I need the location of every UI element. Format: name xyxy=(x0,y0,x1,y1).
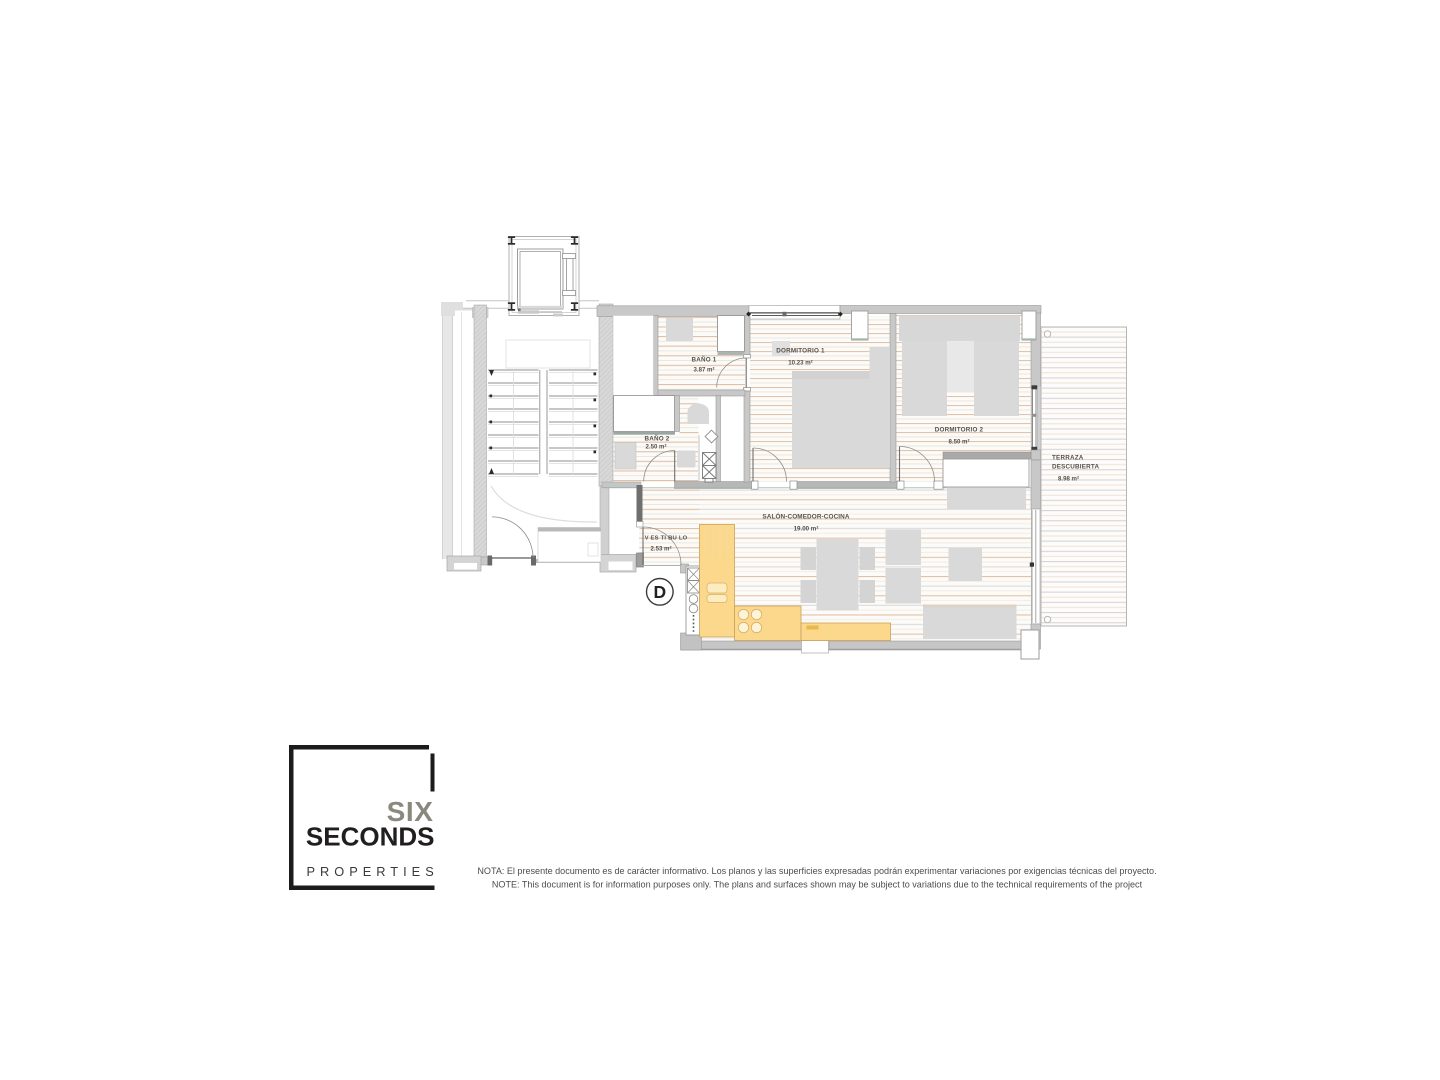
svg-text:19.00 m²: 19.00 m² xyxy=(794,526,819,533)
svg-text:3.87 m²: 3.87 m² xyxy=(693,367,714,374)
svg-text:8.50 m²: 8.50 m² xyxy=(948,439,969,446)
svg-text:NOTE: This document is for inf: NOTE: This document is for information p… xyxy=(492,880,1143,890)
svg-text:TERRAZA: TERRAZA xyxy=(1052,455,1084,462)
svg-text:SECONDS: SECONDS xyxy=(306,822,435,852)
svg-text:PROPERTIES: PROPERTIES xyxy=(307,864,439,879)
svg-text:NOTA: El presente documento es: NOTA: El presente documento es de caráct… xyxy=(477,866,1156,876)
svg-text:2.53 m²: 2.53 m² xyxy=(650,546,671,553)
svg-text:8.98 m²: 8.98 m² xyxy=(1058,476,1079,483)
svg-text:V ES TI BU LO: V ES TI BU LO xyxy=(645,536,688,542)
svg-text:D: D xyxy=(653,582,666,602)
svg-text:BAÑO 1: BAÑO 1 xyxy=(692,355,717,364)
svg-text:BAÑO 2: BAÑO 2 xyxy=(645,434,670,443)
svg-text:SALÓN-COMEDOR-COCINA: SALÓN-COMEDOR-COCINA xyxy=(762,512,849,521)
svg-text:10.23 m²: 10.23 m² xyxy=(788,360,812,367)
svg-text:DORMITORIO 1: DORMITORIO 1 xyxy=(776,348,825,355)
svg-text:DESCUBIERTA: DESCUBIERTA xyxy=(1052,464,1099,471)
svg-text:2.50 m²: 2.50 m² xyxy=(645,444,666,451)
svg-text:DORMITORIO 2: DORMITORIO 2 xyxy=(935,427,984,434)
